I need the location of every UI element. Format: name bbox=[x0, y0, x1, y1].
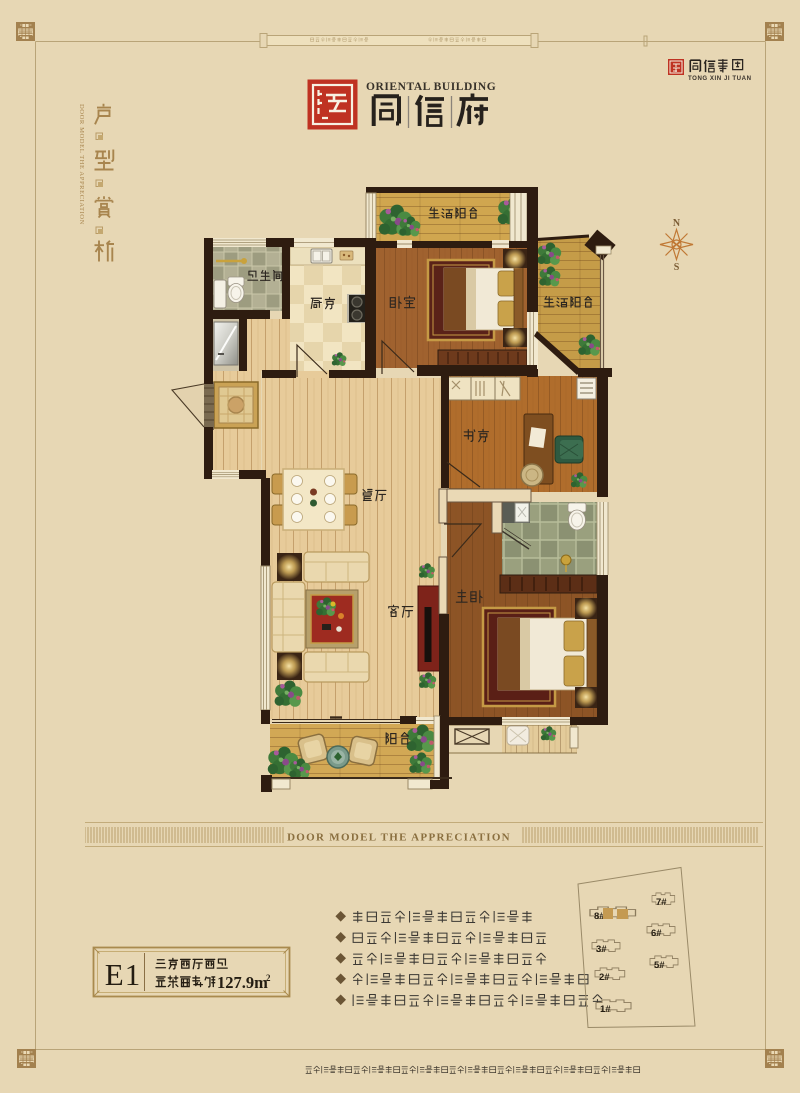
svg-text:DOOR MODEL THE APPRECIATION: DOOR MODEL THE APPRECIATION bbox=[78, 104, 85, 225]
svg-text:2#: 2# bbox=[599, 972, 610, 983]
svg-text:E1: E1 bbox=[105, 957, 141, 992]
svg-text:1#: 1# bbox=[600, 1004, 611, 1015]
svg-text:5#: 5# bbox=[654, 960, 665, 971]
svg-text:3#: 3# bbox=[596, 944, 607, 955]
svg-text:S: S bbox=[674, 262, 680, 273]
svg-text:6#: 6# bbox=[651, 928, 662, 939]
svg-text:N: N bbox=[673, 218, 681, 229]
svg-text:2: 2 bbox=[266, 973, 271, 983]
svg-text:7#: 7# bbox=[656, 897, 667, 908]
svg-text:ORIENTAL BUILDING: ORIENTAL BUILDING bbox=[366, 81, 496, 93]
svg-text:TONG XIN JI TUAN: TONG XIN JI TUAN bbox=[688, 75, 752, 82]
svg-text:DOOR MODEL THE APPRECIATION: DOOR MODEL THE APPRECIATION bbox=[287, 832, 511, 844]
svg-text::: : bbox=[212, 980, 215, 989]
svg-text:127.9m: 127.9m bbox=[217, 973, 268, 992]
